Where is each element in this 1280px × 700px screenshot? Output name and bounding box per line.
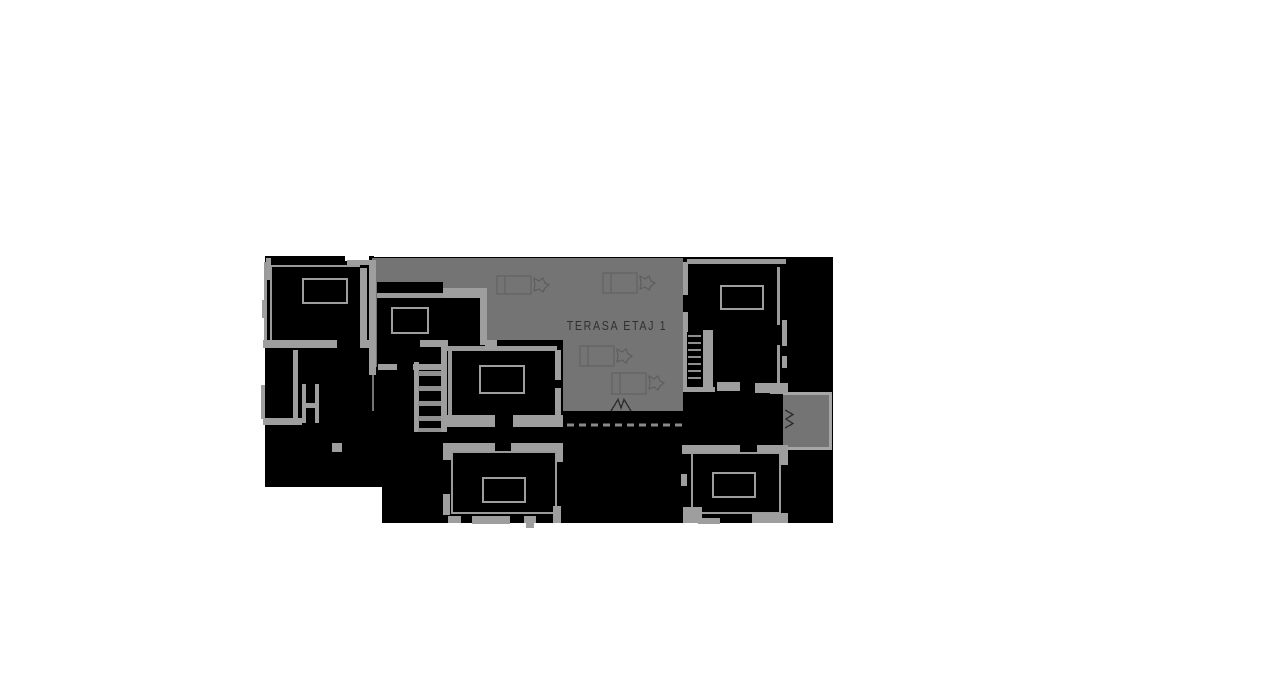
bed-right-bottom — [713, 473, 755, 497]
table-bottom-center — [483, 478, 525, 502]
stair-tread — [418, 386, 441, 391]
stair-tread — [688, 363, 701, 365]
balcony — [783, 392, 832, 450]
window-mark — [472, 516, 510, 524]
stair-tread — [688, 349, 701, 351]
window-mark — [262, 300, 266, 318]
window-mark — [524, 516, 536, 523]
window-mark — [443, 494, 450, 515]
stair-tread — [688, 377, 701, 379]
stair-tread — [688, 342, 701, 344]
bed-top-left — [303, 279, 347, 303]
window-mark — [698, 518, 720, 524]
stair-tread — [688, 335, 701, 337]
bed-center — [480, 366, 524, 393]
stair-tread — [418, 428, 441, 432]
bed-right-top — [721, 286, 763, 309]
stair-tread — [418, 416, 441, 421]
window-mark — [553, 506, 561, 523]
stair-tread — [418, 371, 441, 376]
terrace-label: TERASA ETAJ 1 — [567, 318, 667, 333]
window-mark — [448, 516, 461, 523]
window-mark — [782, 320, 787, 346]
floor-plan-canvas: TERASA ETAJ 1 — [0, 0, 1280, 700]
window-mark — [347, 260, 370, 265]
stair-tread — [688, 370, 701, 372]
window-mark — [681, 474, 687, 486]
window-mark — [782, 356, 787, 368]
stair-tread — [418, 401, 441, 406]
floor-plan-svg: TERASA ETAJ 1 — [0, 0, 1280, 700]
stair-tread — [688, 356, 701, 358]
bed-mid-top — [392, 308, 428, 333]
window-mark — [261, 385, 265, 419]
window-mark — [526, 523, 534, 528]
